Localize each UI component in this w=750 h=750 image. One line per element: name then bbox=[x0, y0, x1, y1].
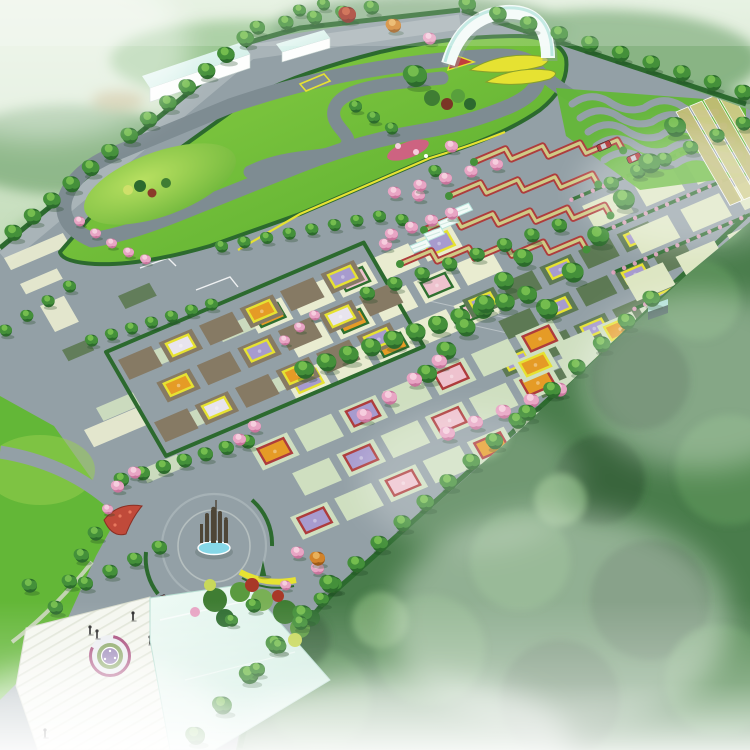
sculpture-pool bbox=[198, 542, 230, 555]
shrub-ball bbox=[445, 192, 453, 200]
shrub-ball bbox=[396, 260, 404, 268]
site-plan-rendering bbox=[0, 0, 750, 750]
shrub bbox=[204, 579, 216, 591]
shrub bbox=[245, 578, 259, 592]
red-bush bbox=[148, 189, 157, 198]
red-bush bbox=[441, 98, 453, 110]
rendering-canvas bbox=[0, 0, 750, 750]
shrub-ball bbox=[582, 246, 590, 254]
shrub-ball bbox=[470, 158, 478, 166]
